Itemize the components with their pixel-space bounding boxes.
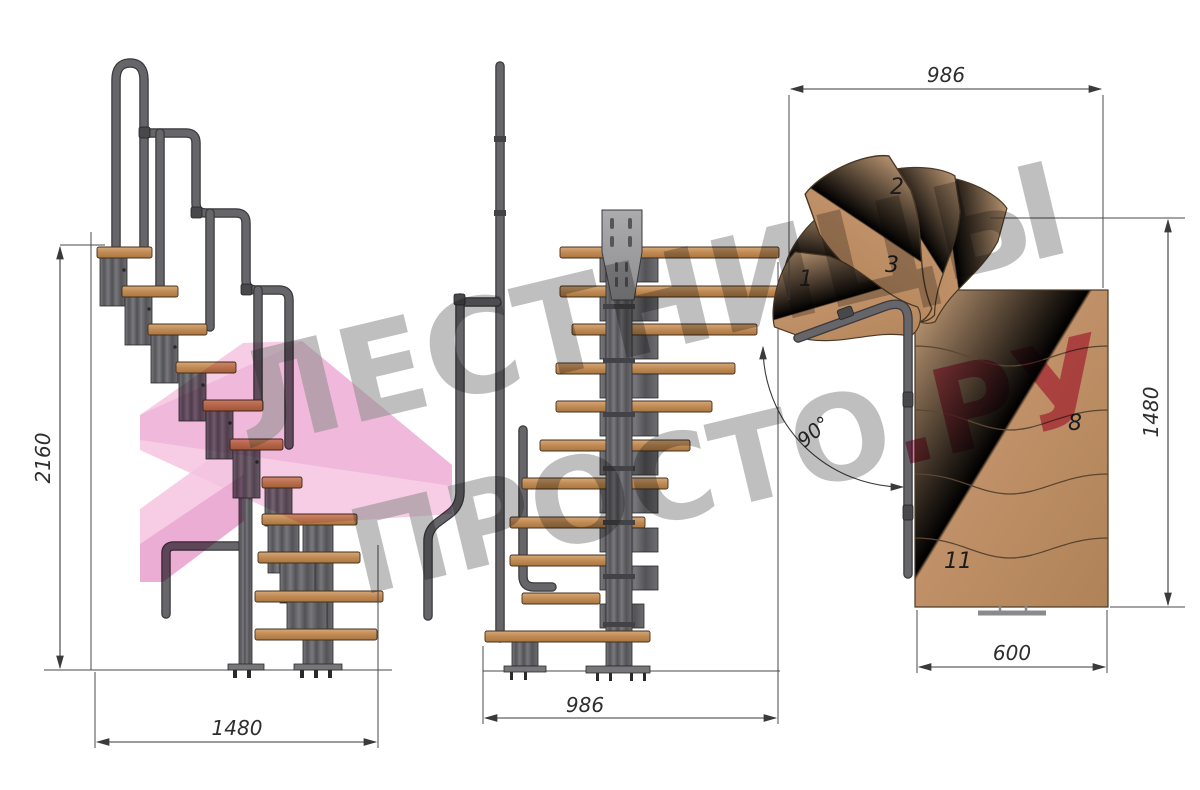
rail-clamp xyxy=(191,207,202,218)
staircase-drawing: 2160 1480 xyxy=(0,0,1200,790)
step-label-11: 11 xyxy=(944,549,972,574)
dimension-plan-bottom: 600 xyxy=(917,610,1107,673)
rail-clamp xyxy=(241,284,252,295)
dimension-side-height: 2160 xyxy=(31,245,105,668)
dim-plan-top-text: 986 xyxy=(927,63,965,87)
dim-plan-bottom-text: 600 xyxy=(993,641,1031,665)
dim-front-width-text: 986 xyxy=(566,693,604,717)
dim-side-height-text: 2160 xyxy=(31,433,55,484)
base-plate xyxy=(294,664,342,670)
anchor-bolts xyxy=(233,670,332,678)
base-plate xyxy=(228,664,264,670)
dimension-side-width: 1480 xyxy=(95,545,378,748)
entry-column xyxy=(512,642,538,666)
base-plate xyxy=(586,666,650,673)
drawing-canvas: 2160 1480 xyxy=(0,0,1200,790)
dim-side-width-text: 1480 xyxy=(212,716,263,740)
entry-tread xyxy=(485,631,650,642)
dim-plan-right-text: 1480 xyxy=(1139,387,1163,438)
rail-clamp xyxy=(139,127,150,138)
base-plate xyxy=(504,666,546,672)
